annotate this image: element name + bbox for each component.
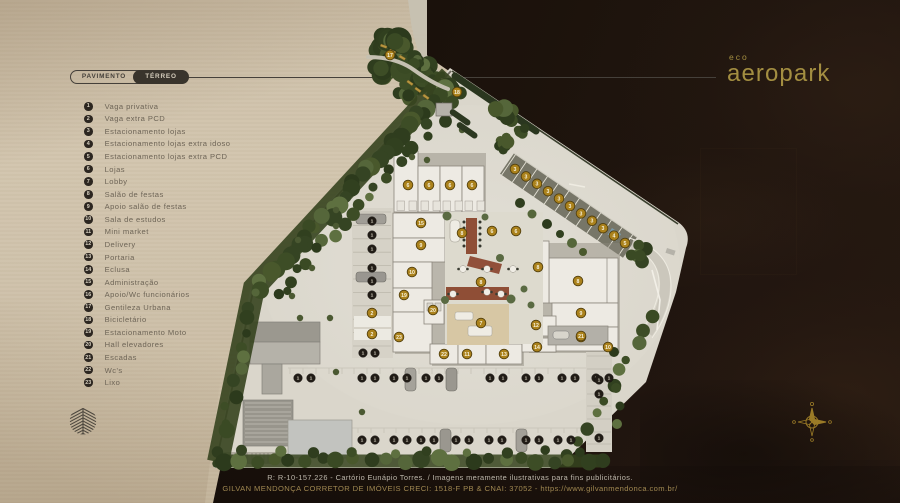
svg-text:7: 7 [480,321,483,327]
svg-text:1: 1 [371,247,374,253]
svg-text:1: 1 [371,293,374,299]
svg-text:1: 1 [297,376,300,382]
svg-text:1: 1 [525,376,528,382]
svg-text:4: 4 [613,234,616,240]
svg-text:1: 1 [371,219,374,225]
svg-text:1: 1 [362,351,365,357]
svg-text:8: 8 [577,279,580,285]
svg-text:1: 1 [393,376,396,382]
svg-text:5: 5 [624,241,627,247]
svg-text:3: 3 [580,211,583,217]
svg-text:1: 1 [371,233,374,239]
svg-text:22: 22 [441,352,447,358]
svg-text:14: 14 [534,345,540,351]
svg-text:1: 1 [557,438,560,444]
svg-text:21: 21 [578,334,584,340]
svg-text:1: 1 [374,351,377,357]
svg-text:6: 6 [449,183,452,189]
svg-text:9: 9 [420,243,423,249]
svg-text:1: 1 [425,376,428,382]
svg-text:1: 1 [489,376,492,382]
svg-text:1: 1 [371,279,374,285]
svg-text:1: 1 [561,376,564,382]
svg-text:1: 1 [310,376,313,382]
svg-text:1: 1 [361,376,364,382]
svg-text:1: 1 [438,376,441,382]
svg-text:8: 8 [537,265,540,271]
svg-text:1: 1 [574,376,577,382]
svg-text:1: 1 [371,266,374,272]
svg-text:10: 10 [409,270,415,276]
svg-text:1: 1 [570,438,573,444]
svg-text:6: 6 [491,229,494,235]
svg-text:1: 1 [598,392,601,398]
svg-text:2: 2 [371,332,374,338]
svg-text:1: 1 [374,376,377,382]
svg-text:1: 1 [455,438,458,444]
svg-text:1: 1 [374,438,377,444]
svg-text:12: 12 [533,323,539,329]
svg-text:6: 6 [407,183,410,189]
svg-text:19: 19 [401,293,407,299]
svg-text:15: 15 [418,221,424,227]
svg-text:1: 1 [433,438,436,444]
svg-text:1: 1 [501,438,504,444]
svg-text:1: 1 [406,376,409,382]
svg-text:13: 13 [501,352,507,358]
svg-text:6: 6 [428,183,431,189]
svg-text:6: 6 [471,183,474,189]
svg-text:3: 3 [602,226,605,232]
svg-text:3: 3 [514,167,517,173]
svg-text:3: 3 [525,174,528,180]
svg-text:1: 1 [598,436,601,442]
svg-text:1: 1 [488,438,491,444]
svg-text:1: 1 [538,376,541,382]
svg-text:1: 1 [420,438,423,444]
svg-text:1: 1 [468,438,471,444]
svg-text:3: 3 [547,189,550,195]
svg-text:1: 1 [393,438,396,444]
svg-text:1: 1 [525,438,528,444]
svg-text:1: 1 [538,438,541,444]
svg-text:23: 23 [396,335,402,341]
svg-text:1: 1 [608,376,611,382]
svg-text:6: 6 [515,229,518,235]
svg-text:20: 20 [430,308,436,314]
svg-text:1: 1 [502,376,505,382]
svg-text:3: 3 [558,197,561,203]
svg-text:1: 1 [361,438,364,444]
svg-text:3: 3 [591,219,594,225]
svg-text:10: 10 [605,345,611,351]
svg-text:3: 3 [536,182,539,188]
svg-text:1: 1 [598,378,601,384]
svg-text:8: 8 [480,280,483,286]
svg-text:17: 17 [387,53,393,59]
svg-text:8: 8 [461,231,464,237]
svg-text:1: 1 [406,438,409,444]
svg-text:18: 18 [454,90,460,96]
svg-text:9: 9 [580,311,583,317]
svg-text:11: 11 [464,352,470,358]
svg-text:2: 2 [371,311,374,317]
svg-text:3: 3 [569,204,572,210]
